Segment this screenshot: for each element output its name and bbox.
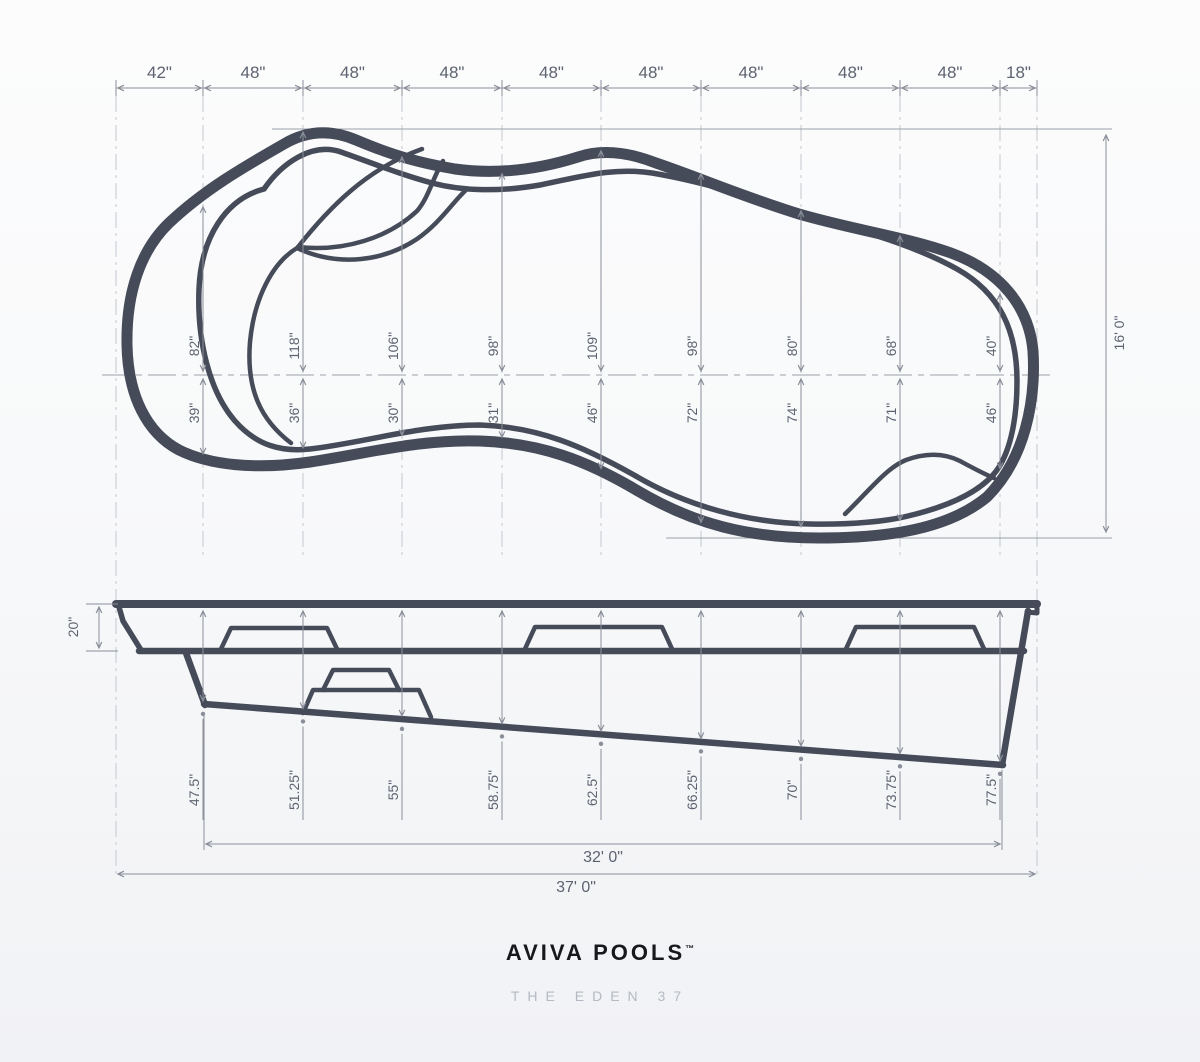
floor-length-label: 32' 0" bbox=[583, 849, 623, 866]
depth-dot bbox=[799, 757, 803, 761]
half-width-label-bottom: 71" bbox=[883, 403, 899, 424]
half-width-label-top: 118" bbox=[286, 332, 302, 359]
segment-width-label: 48" bbox=[440, 63, 465, 82]
half-width-label-bottom: 72" bbox=[684, 403, 700, 424]
brand-text: AVIVA POOLS bbox=[506, 940, 685, 965]
segment-width-label: 48" bbox=[639, 63, 664, 82]
depth-dot bbox=[301, 719, 305, 723]
overall-width-label: 16' 0" bbox=[1111, 316, 1127, 351]
depth-dot bbox=[400, 727, 404, 731]
half-width-label-top: 106" bbox=[385, 332, 401, 360]
right-wall bbox=[1002, 611, 1028, 765]
segment-width-label: 48" bbox=[838, 63, 863, 82]
half-width-label-bottom: 39" bbox=[186, 403, 202, 424]
half-width-label-bottom: 46" bbox=[584, 403, 600, 424]
half-width-label-top: 68" bbox=[883, 336, 899, 357]
half-width-label-top: 40" bbox=[983, 336, 999, 357]
entry-step-curve-upper bbox=[298, 149, 422, 247]
depth-dot bbox=[500, 734, 504, 738]
depth-label: 47.5" bbox=[186, 774, 202, 806]
sloped-floor bbox=[204, 704, 1003, 765]
half-width-label-top: 98" bbox=[684, 336, 700, 357]
coping-height-label: 20" bbox=[65, 617, 81, 638]
segment-width-label: 48" bbox=[539, 63, 564, 82]
depth-label: 77.5" bbox=[983, 774, 999, 806]
dimension-annotations: 42"48"48"48"48"48"48"48"48"18"82"118"106… bbox=[65, 63, 1127, 896]
depth-label: 51.25" bbox=[286, 770, 302, 810]
half-width-label-bottom: 74" bbox=[784, 403, 800, 424]
plan-view-pool bbox=[127, 133, 1034, 538]
half-width-label-top: 80" bbox=[784, 336, 800, 357]
half-width-label-bottom: 31" bbox=[485, 403, 501, 424]
trademark-symbol: ™ bbox=[685, 944, 694, 954]
segment-width-label: 48" bbox=[938, 63, 963, 82]
half-width-label-top: 82" bbox=[186, 336, 202, 357]
bench-2-outline bbox=[524, 627, 673, 651]
depth-label: 58.75" bbox=[485, 770, 501, 810]
pool-blueprint-canvas: 42"48"48"48"48"48"48"48"48"18"82"118"106… bbox=[0, 0, 1200, 1062]
bench-1-outline bbox=[220, 628, 338, 651]
depth-label: 70" bbox=[784, 780, 800, 801]
half-width-label-bottom: 30" bbox=[385, 403, 401, 424]
overall-length-label: 37' 0" bbox=[556, 879, 596, 896]
title-block: AVIVA POOLS™ THE EDEN 37 bbox=[0, 940, 1200, 1004]
side-view-profile bbox=[116, 604, 1037, 765]
segment-width-label: 18" bbox=[1006, 63, 1031, 82]
segment-width-label: 48" bbox=[340, 63, 365, 82]
depth-dot bbox=[201, 712, 205, 716]
pool-outer-coping bbox=[127, 133, 1034, 538]
shelf-drop-wall bbox=[186, 653, 205, 705]
depth-label: 55" bbox=[385, 780, 401, 801]
model-name: THE EDEN 37 bbox=[0, 988, 1200, 1004]
brand-name: AVIVA POOLS™ bbox=[0, 940, 1200, 966]
half-width-label-bottom: 46" bbox=[983, 403, 999, 424]
segment-width-label: 48" bbox=[241, 63, 266, 82]
depth-dot bbox=[699, 749, 703, 753]
bench-3-outline bbox=[845, 627, 985, 651]
half-width-label-top: 109" bbox=[584, 332, 600, 360]
depth-dot bbox=[898, 764, 902, 768]
half-width-label-bottom: 36" bbox=[286, 403, 302, 424]
depth-dot bbox=[599, 742, 603, 746]
depth-label: 73.75" bbox=[883, 770, 899, 810]
entry-step-upper bbox=[323, 670, 399, 690]
depth-label: 66.25" bbox=[684, 770, 700, 810]
half-width-label-top: 98" bbox=[485, 336, 501, 357]
left-wall bbox=[119, 607, 141, 650]
segment-width-label: 48" bbox=[739, 63, 764, 82]
depth-label: 62.5" bbox=[584, 774, 600, 806]
segment-width-label: 42" bbox=[147, 63, 172, 82]
